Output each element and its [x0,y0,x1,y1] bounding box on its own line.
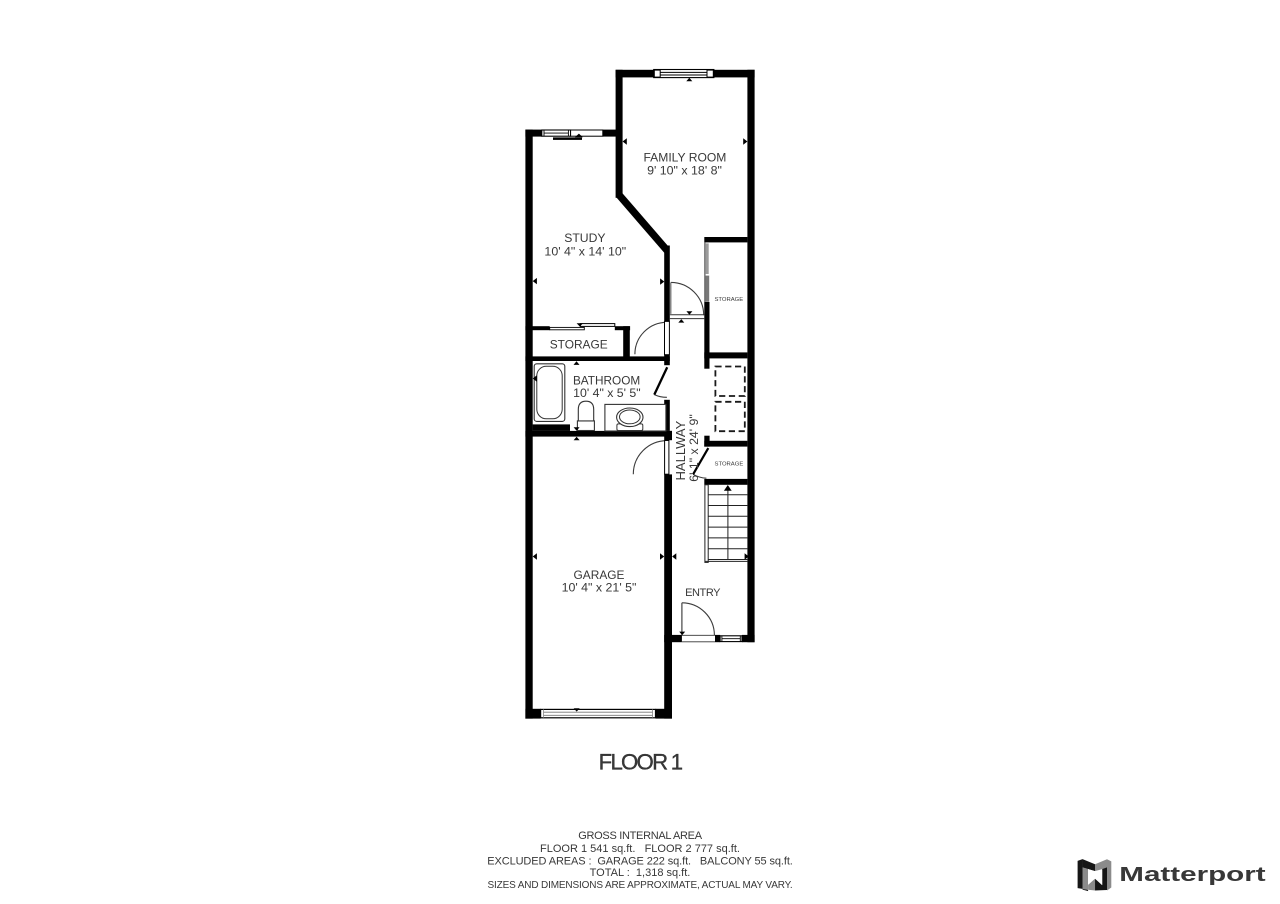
svg-text:STUDY: STUDY [564,231,605,245]
svg-text:SIZES AND DIMENSIONS ARE APPRO: SIZES AND DIMENSIONS ARE APPROXIMATE, AC… [488,880,793,891]
svg-text:9' 10" x 18' 8": 9' 10" x 18' 8" [647,164,722,178]
svg-text:HALLWAY: HALLWAY [673,420,688,480]
svg-text:STORAGE: STORAGE [715,462,744,468]
svg-text:STORAGE: STORAGE [550,337,608,351]
svg-text:Matterport: Matterport [1119,864,1266,886]
svg-text:10' 4" x 21' 5": 10' 4" x 21' 5" [562,581,637,595]
svg-text:ENTRY: ENTRY [685,587,721,599]
svg-text:10' 4" x 14' 10": 10' 4" x 14' 10" [544,244,626,258]
svg-text:FLOOR 1 541 sq.ft. FLOOR 2 7: FLOOR 1 541 sq.ft. FLOOR 2 777 sq.ft. [540,843,740,855]
svg-text:TOTAL : 1,318 sq.ft.: TOTAL : 1,318 sq.ft. [590,867,691,879]
svg-text:GROSS INTERNAL AREA: GROSS INTERNAL AREA [578,830,702,842]
svg-text:FLOOR 1: FLOOR 1 [599,750,683,775]
svg-text:10' 4" x 5' 5": 10' 4" x 5' 5" [573,386,640,400]
svg-text:EXCLUDED AREAS : GARAGE 222 s: EXCLUDED AREAS : GARAGE 222 sq.ft. BALCO… [487,855,793,867]
svg-text:FAMILY ROOM: FAMILY ROOM [643,151,726,165]
svg-text:6' 1" x 24' 9": 6' 1" x 24' 9" [687,414,701,481]
svg-text:STORAGE: STORAGE [714,297,743,303]
